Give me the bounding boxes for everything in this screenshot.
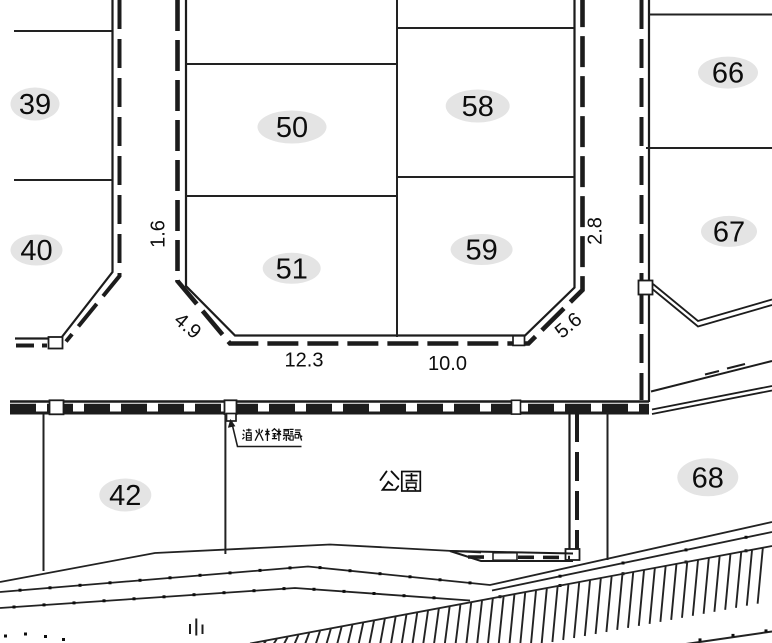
svg-text:67: 67: [713, 216, 745, 248]
svg-text:66: 66: [712, 58, 744, 90]
svg-text:51: 51: [276, 253, 308, 285]
svg-text:68: 68: [692, 462, 724, 494]
svg-text:12.3: 12.3: [285, 350, 324, 372]
svg-text:59: 59: [465, 235, 497, 267]
svg-text:39: 39: [19, 89, 51, 121]
svg-text:40: 40: [20, 235, 52, 267]
svg-text:42: 42: [109, 480, 141, 512]
svg-text:50: 50: [276, 112, 308, 144]
svg-text:2.8: 2.8: [585, 217, 607, 245]
svg-text:1.6: 1.6: [148, 220, 170, 248]
svg-text:10.0: 10.0: [428, 353, 467, 375]
svg-text:58: 58: [462, 91, 494, 123]
